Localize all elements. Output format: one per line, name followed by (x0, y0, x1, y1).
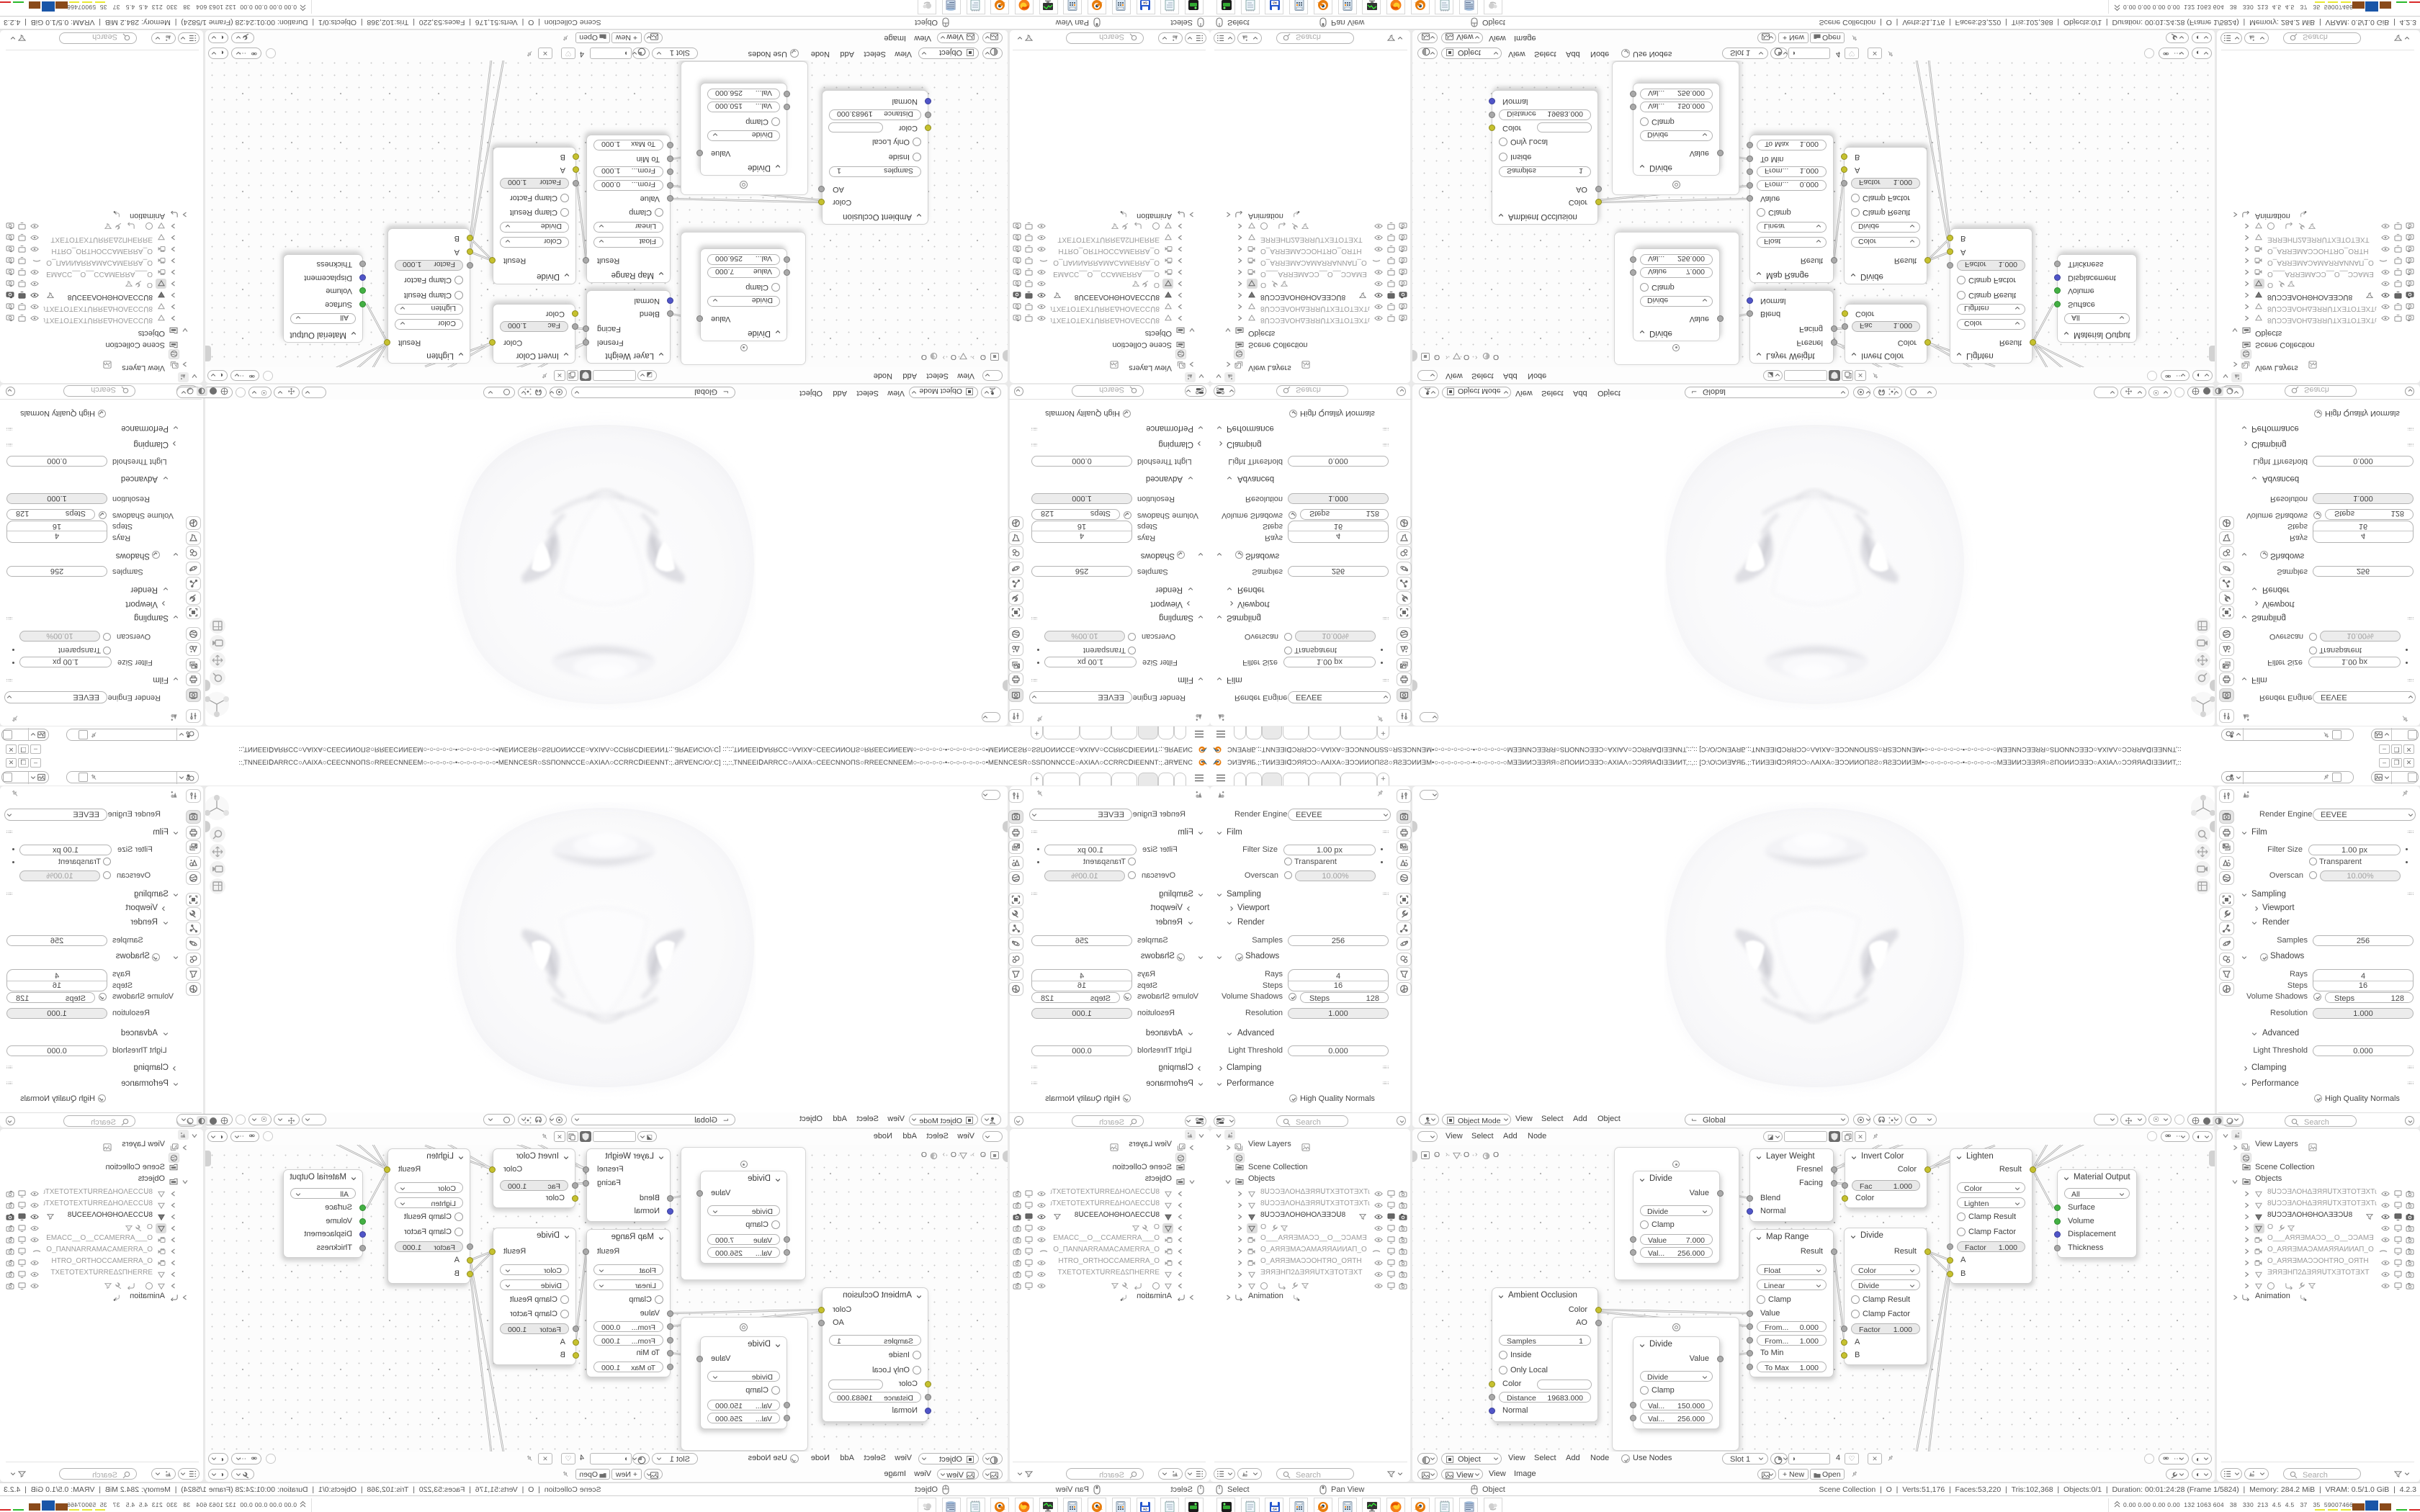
svg-text:64: 64 (1273, 1, 1277, 5)
svg-text:64: 64 (1143, 1508, 1147, 1512)
svg-text:64: 64 (1273, 1508, 1277, 1512)
svg-text:64: 64 (1143, 1, 1147, 5)
